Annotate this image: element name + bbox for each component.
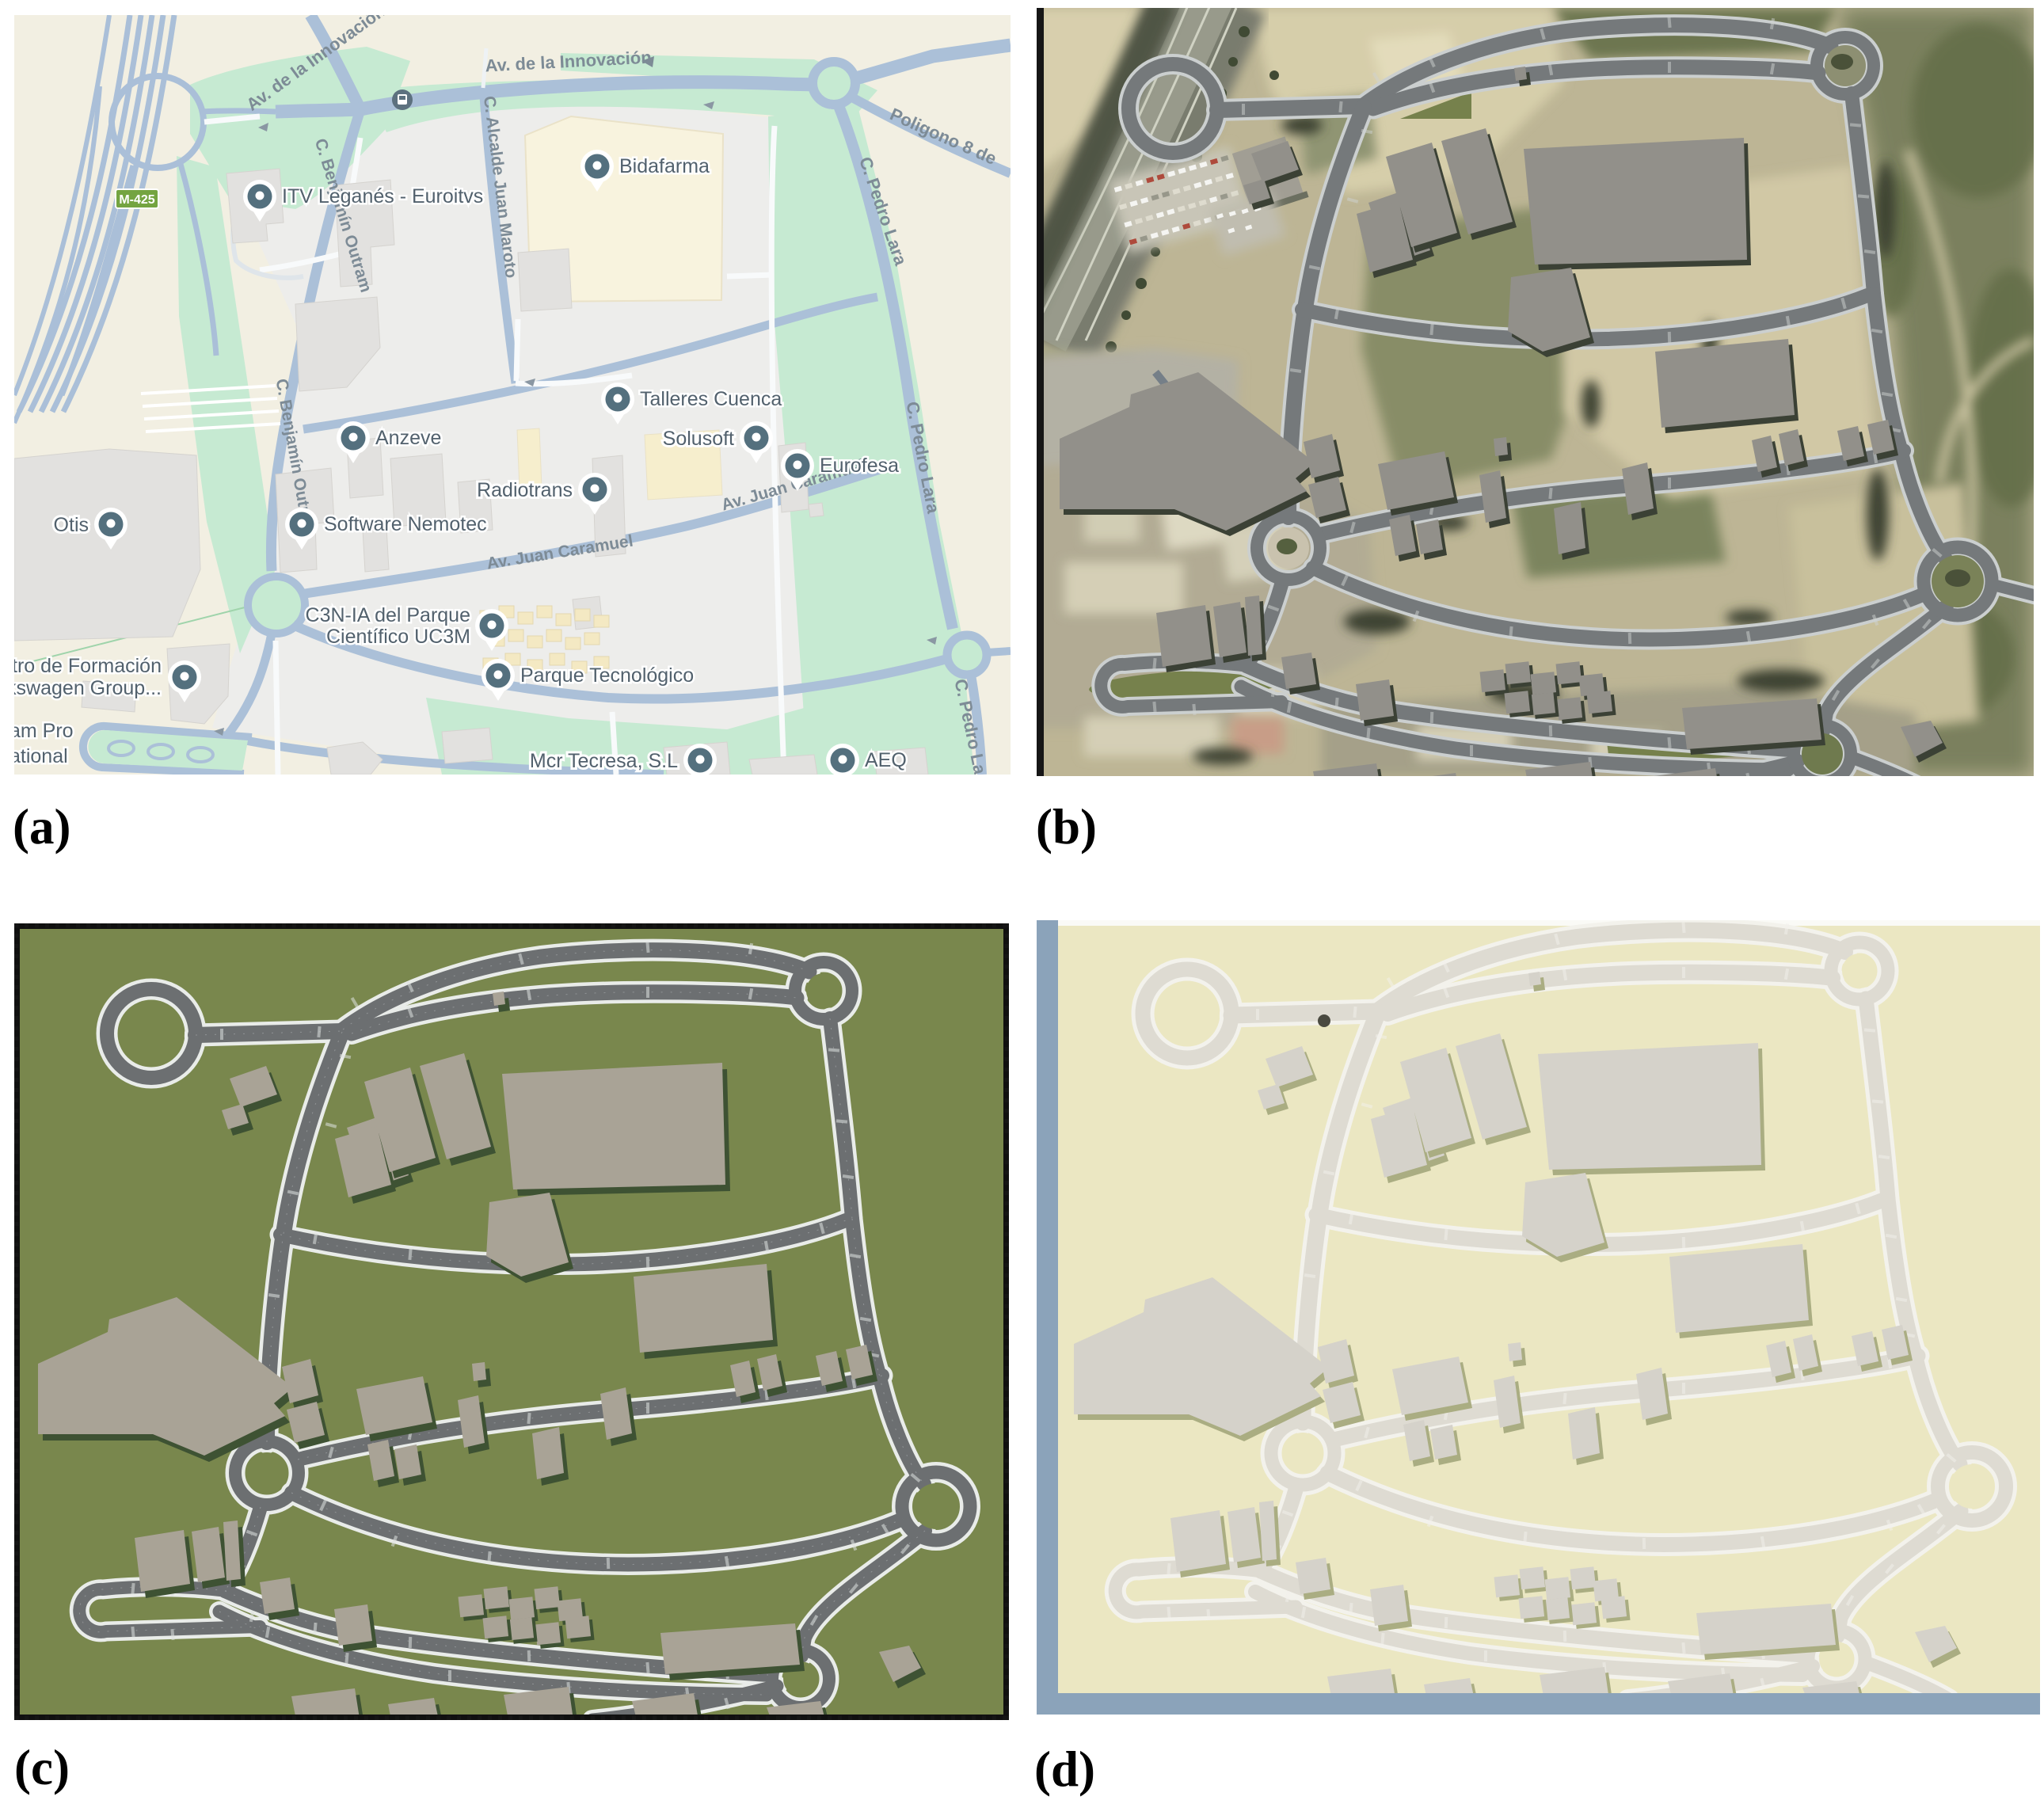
svg-text:C3N-IA del Parque: C3N-IA del Parque xyxy=(306,604,470,626)
svg-text:entro de Formación: entro de Formación xyxy=(14,655,162,677)
svg-text:Mcr Tecresa, S.L: Mcr Tecresa, S.L xyxy=(530,750,678,772)
svg-text:ITV Leganés - Euroitvs: ITV Leganés - Euroitvs xyxy=(282,185,483,207)
svg-text:ational: ational xyxy=(14,745,68,767)
svg-text:Talleres Cuenca: Talleres Cuenca xyxy=(640,388,782,410)
svg-text:Eurofesa: Eurofesa xyxy=(820,455,899,477)
svg-text:Anzeve: Anzeve xyxy=(375,427,441,449)
svg-text:am Pro: am Pro xyxy=(14,720,74,742)
svg-text:olkswagen Group...: olkswagen Group... xyxy=(14,677,162,699)
svg-text:Solusoft: Solusoft xyxy=(663,428,734,450)
svg-text:Científico UC3M: Científico UC3M xyxy=(326,626,470,648)
svg-text:Parque Tecnológico: Parque Tecnológico xyxy=(520,664,694,687)
svg-text:Bidafarma: Bidafarma xyxy=(619,155,710,177)
svg-text:AEQ: AEQ xyxy=(865,749,907,771)
svg-text:Software Nemotec: Software Nemotec xyxy=(324,513,487,535)
svg-text:Otis: Otis xyxy=(54,514,89,536)
svg-text:M-425: M-425 xyxy=(119,193,154,207)
svg-text:Radiotrans: Radiotrans xyxy=(477,479,573,501)
